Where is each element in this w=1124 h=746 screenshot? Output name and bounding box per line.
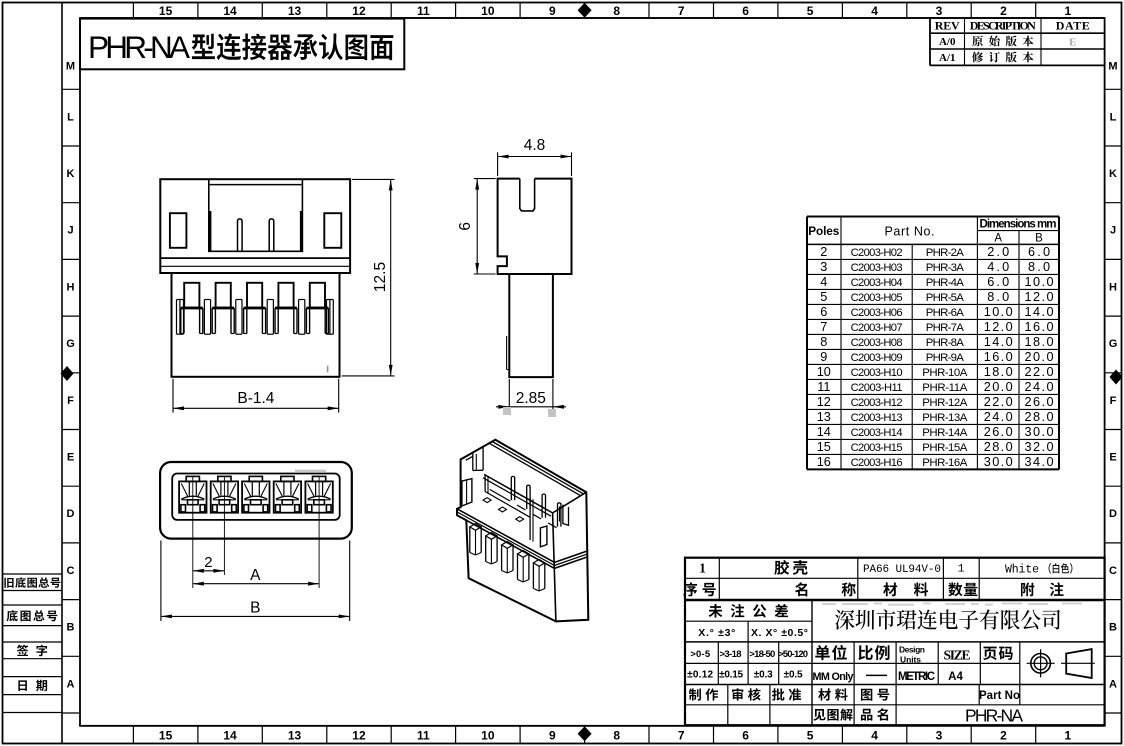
svg-text:>50-120: >50-120 <box>778 649 808 660</box>
svg-text:B: B <box>1109 622 1117 634</box>
svg-text:18.0: 18.0 <box>984 365 1013 379</box>
svg-text:C2003-H04: C2003-H04 <box>851 277 903 289</box>
svg-text:28.0: 28.0 <box>1025 410 1054 424</box>
svg-text:10: 10 <box>481 729 495 743</box>
svg-text:10.0: 10.0 <box>1025 275 1054 289</box>
svg-text:C2003-H03: C2003-H03 <box>851 262 903 274</box>
svg-text:L: L <box>1110 111 1117 123</box>
svg-text:PHR-2A: PHR-2A <box>926 247 964 259</box>
svg-text:PHR-7A: PHR-7A <box>926 322 964 334</box>
svg-text:18.0: 18.0 <box>1025 335 1054 349</box>
svg-text:C: C <box>67 565 75 577</box>
svg-text:E: E <box>1069 36 1076 48</box>
svg-text:9: 9 <box>549 4 556 18</box>
svg-text:1: 1 <box>1065 4 1072 18</box>
svg-text:11: 11 <box>417 729 430 743</box>
svg-text:3: 3 <box>820 260 827 274</box>
svg-text:PHR-16A: PHR-16A <box>922 457 967 469</box>
svg-text:10.0: 10.0 <box>984 305 1013 319</box>
svg-text:F: F <box>1110 395 1117 407</box>
svg-text:6.0: 6.0 <box>1028 245 1050 259</box>
svg-text:2: 2 <box>204 554 212 571</box>
svg-text:D: D <box>1109 508 1117 520</box>
svg-text:4: 4 <box>871 729 878 743</box>
svg-text:C2003-H10: C2003-H10 <box>851 367 903 379</box>
svg-text:C2003-H16: C2003-H16 <box>851 457 903 469</box>
svg-text:5: 5 <box>820 290 827 304</box>
svg-text:G: G <box>1109 338 1118 350</box>
svg-text:10: 10 <box>817 365 831 379</box>
svg-text:2: 2 <box>1000 729 1007 743</box>
svg-text:A/0: A/0 <box>939 36 956 48</box>
svg-text:8: 8 <box>613 4 620 18</box>
svg-text:C2003-H09: C2003-H09 <box>851 352 903 364</box>
svg-text:PHR-3A: PHR-3A <box>926 262 964 274</box>
svg-text:8.0: 8.0 <box>1028 260 1050 274</box>
svg-text:K: K <box>67 168 75 180</box>
svg-text:2.0: 2.0 <box>987 245 1009 259</box>
svg-text:PHR-14A: PHR-14A <box>922 427 967 439</box>
svg-text:20.0: 20.0 <box>1025 350 1054 364</box>
svg-text:METRIC: METRIC <box>898 671 935 683</box>
svg-text:E: E <box>1109 452 1116 464</box>
svg-text:C2003-H11: C2003-H11 <box>851 382 903 394</box>
svg-text:1: 1 <box>958 564 965 576</box>
svg-text:8: 8 <box>613 729 620 743</box>
svg-text:C2003-H07: C2003-H07 <box>851 322 903 334</box>
svg-text:14: 14 <box>223 729 237 743</box>
svg-text:PHR-NA: PHR-NA <box>88 29 190 65</box>
svg-text:20.0: 20.0 <box>984 380 1013 394</box>
svg-text:6: 6 <box>742 729 749 743</box>
svg-text:>18-50: >18-50 <box>749 649 775 660</box>
svg-text:PHR-6A: PHR-6A <box>926 307 964 319</box>
svg-text:3: 3 <box>936 4 943 18</box>
svg-text:24.0: 24.0 <box>984 410 1013 424</box>
svg-text:5: 5 <box>807 4 814 18</box>
svg-text:White: White <box>1005 563 1039 576</box>
svg-text:28.0: 28.0 <box>984 440 1013 454</box>
svg-text:M: M <box>66 61 75 73</box>
svg-text:12: 12 <box>817 395 831 409</box>
svg-text:12.5: 12.5 <box>372 262 389 292</box>
svg-text:PHR-5A: PHR-5A <box>926 292 964 304</box>
svg-text:24.0: 24.0 <box>1025 380 1054 394</box>
svg-text:Units: Units <box>900 654 921 664</box>
svg-text:PHR-9A: PHR-9A <box>926 352 964 364</box>
svg-text:B: B <box>250 600 260 617</box>
svg-text:4.0: 4.0 <box>987 260 1009 274</box>
svg-text:15: 15 <box>159 729 173 743</box>
svg-text:14.0: 14.0 <box>984 335 1013 349</box>
svg-text:15: 15 <box>817 440 831 454</box>
svg-text:12: 12 <box>352 729 366 743</box>
svg-text:REV: REV <box>935 19 960 33</box>
svg-text:PHR-15A: PHR-15A <box>922 442 967 454</box>
svg-text:DATE: DATE <box>1056 19 1090 33</box>
svg-text:H: H <box>1109 281 1117 293</box>
svg-text:11: 11 <box>817 380 830 394</box>
svg-text:6.0: 6.0 <box>987 275 1009 289</box>
svg-text:4: 4 <box>820 275 827 289</box>
svg-text:C: C <box>1109 565 1117 577</box>
svg-text:PHR-11A: PHR-11A <box>922 382 967 394</box>
svg-text:Part No: Part No <box>979 690 1020 702</box>
svg-text:5: 5 <box>807 729 814 743</box>
svg-text:SIZE: SIZE <box>944 647 971 662</box>
svg-text:A: A <box>250 567 261 584</box>
svg-text:14: 14 <box>223 4 237 18</box>
svg-text:J: J <box>67 225 73 237</box>
svg-text:16: 16 <box>817 455 831 469</box>
svg-text:Dimensions mm: Dimensions mm <box>980 218 1057 230</box>
svg-text:1: 1 <box>1065 729 1072 743</box>
svg-text:E: E <box>67 452 74 464</box>
svg-text:A4: A4 <box>948 671 963 683</box>
svg-text:K: K <box>1109 168 1117 180</box>
svg-text:12.0: 12.0 <box>984 320 1013 334</box>
svg-text:PHR-12A: PHR-12A <box>922 397 967 409</box>
svg-text:26.0: 26.0 <box>1025 395 1054 409</box>
svg-text:Design: Design <box>899 645 925 655</box>
svg-text:8.0: 8.0 <box>987 290 1009 304</box>
svg-text:X. X° ±0.5°: X. X° ±0.5° <box>751 627 808 639</box>
svg-text:C2003-H13: C2003-H13 <box>851 412 903 424</box>
svg-text:±0.15: ±0.15 <box>719 670 743 681</box>
svg-text:7: 7 <box>678 729 685 743</box>
svg-text:1: 1 <box>699 561 706 576</box>
svg-text:C2003-H15: C2003-H15 <box>851 442 903 454</box>
svg-text:PHR-4A: PHR-4A <box>926 277 964 289</box>
svg-text:M: M <box>1108 61 1117 73</box>
svg-text:C2003-H05: C2003-H05 <box>851 292 903 304</box>
svg-text:Poles: Poles <box>808 224 839 238</box>
svg-text:22.0: 22.0 <box>984 395 1013 409</box>
svg-text:X.° ±3°: X.° ±3° <box>698 627 735 639</box>
svg-text:C2003-H08: C2003-H08 <box>851 337 903 349</box>
svg-text:J: J <box>1110 225 1116 237</box>
svg-text:7: 7 <box>820 320 827 334</box>
svg-text:A/1: A/1 <box>939 52 956 64</box>
svg-text:8: 8 <box>820 335 827 349</box>
svg-text:16.0: 16.0 <box>1025 320 1054 334</box>
svg-text:26.0: 26.0 <box>984 425 1013 439</box>
svg-text:30.0: 30.0 <box>984 455 1013 469</box>
svg-text:PA66 UL94V-0: PA66 UL94V-0 <box>863 564 941 576</box>
svg-text:C2003-H14: C2003-H14 <box>851 427 903 439</box>
svg-text:12.0: 12.0 <box>1025 290 1054 304</box>
svg-text:C2003-H12: C2003-H12 <box>851 397 903 409</box>
svg-text:A: A <box>1109 678 1117 690</box>
svg-text:9: 9 <box>549 729 556 743</box>
svg-text:MM Only: MM Only <box>813 671 854 683</box>
svg-text:12: 12 <box>352 4 366 18</box>
svg-text:11: 11 <box>417 4 430 18</box>
svg-text:9: 9 <box>820 350 827 364</box>
svg-text:B: B <box>67 622 75 634</box>
svg-text:6: 6 <box>457 222 474 231</box>
svg-text:C2003-H06: C2003-H06 <box>851 307 903 319</box>
svg-text:2: 2 <box>1000 4 1007 18</box>
svg-text:32.0: 32.0 <box>1025 440 1054 454</box>
svg-text:L: L <box>67 111 74 123</box>
svg-text:PHR-NA: PHR-NA <box>965 706 1023 726</box>
svg-text:14.0: 14.0 <box>1025 305 1054 319</box>
svg-text:Part No.: Part No. <box>885 224 935 238</box>
svg-text:G: G <box>66 338 75 350</box>
svg-text:>0-5: >0-5 <box>690 649 711 660</box>
svg-text:13: 13 <box>288 4 302 18</box>
svg-text:F: F <box>67 395 74 407</box>
svg-text:13: 13 <box>288 729 302 743</box>
svg-text:2.85: 2.85 <box>516 390 546 407</box>
svg-text:13: 13 <box>817 410 831 424</box>
svg-text:B-1.4: B-1.4 <box>237 390 274 407</box>
svg-text:22.0: 22.0 <box>1025 365 1054 379</box>
svg-text:15: 15 <box>159 4 173 18</box>
svg-text:PHR-8A: PHR-8A <box>926 337 964 349</box>
svg-text:7: 7 <box>678 4 685 18</box>
svg-text:DESCRIPTION: DESCRIPTION <box>970 19 1036 33</box>
svg-text:2: 2 <box>820 245 827 259</box>
svg-text:6: 6 <box>820 305 827 319</box>
svg-text:30.0: 30.0 <box>1025 425 1054 439</box>
svg-text:H: H <box>67 281 75 293</box>
svg-text:3: 3 <box>936 729 943 743</box>
svg-text:34.0: 34.0 <box>1025 455 1054 469</box>
svg-text:A: A <box>994 233 1002 245</box>
svg-text:16.0: 16.0 <box>984 350 1013 364</box>
svg-text:±0.3: ±0.3 <box>754 670 773 681</box>
svg-text:14: 14 <box>817 425 831 439</box>
svg-text:C2003-H02: C2003-H02 <box>851 247 903 259</box>
svg-text:A: A <box>67 678 75 690</box>
svg-text:6: 6 <box>742 4 749 18</box>
svg-text:4.8: 4.8 <box>524 137 546 154</box>
svg-text:4: 4 <box>871 4 878 18</box>
svg-text:PHR-10A: PHR-10A <box>922 367 967 379</box>
svg-text:±0.12: ±0.12 <box>687 670 713 681</box>
svg-text:>3-18: >3-18 <box>720 649 742 660</box>
svg-text:PHR-13A: PHR-13A <box>922 412 967 424</box>
svg-text:10: 10 <box>481 4 495 18</box>
svg-text:±0.5: ±0.5 <box>784 670 803 681</box>
svg-text:D: D <box>67 508 75 520</box>
svg-text:B: B <box>1035 233 1043 245</box>
